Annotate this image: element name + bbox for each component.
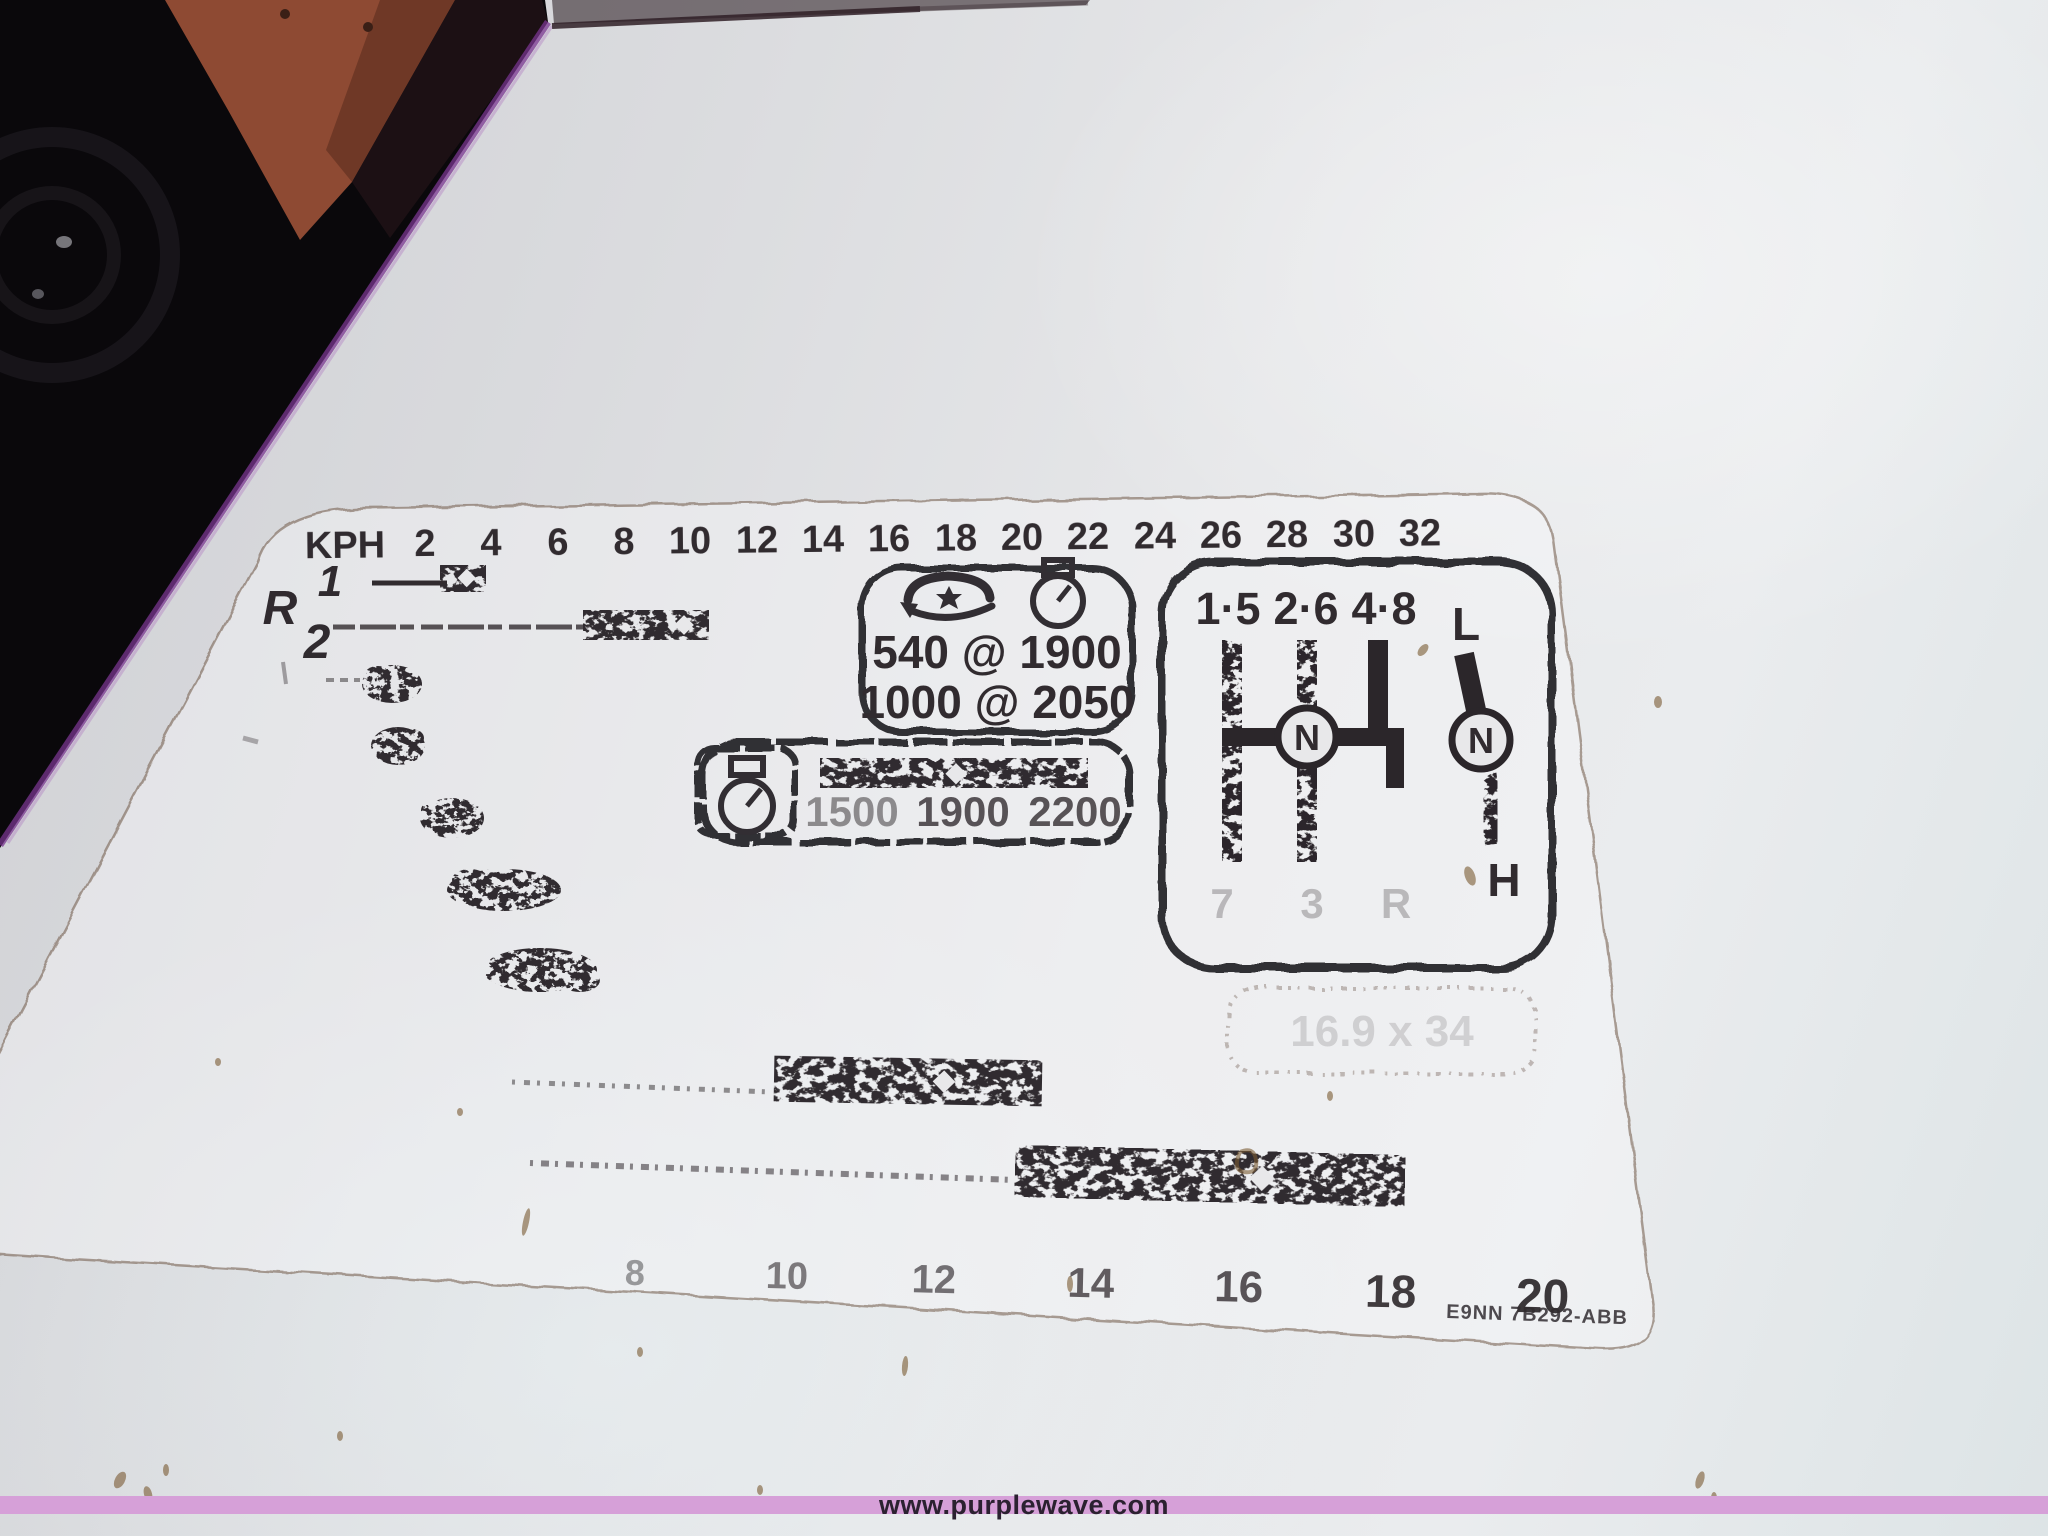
kph-tick: 4	[480, 522, 502, 564]
range-low-label: L	[1452, 598, 1480, 650]
engine-rpm-value-2: 1900	[916, 788, 1009, 835]
tire-size-label: 16.9 x 34	[1290, 1007, 1474, 1056]
gear6-bar-worn	[774, 1056, 1043, 1107]
shift-bottom-label-3: R	[1381, 880, 1411, 927]
pto-speed-540: 540 @ 1900	[872, 626, 1122, 678]
gear3-bar-worn	[420, 798, 484, 838]
gear4-bar-worn	[447, 869, 561, 911]
pto-speed-1000: 1000 @ 2050	[859, 676, 1134, 728]
kph-tick: 28	[1266, 514, 1309, 556]
kph-tick: 24	[1134, 515, 1177, 557]
gear7-bar-worn	[1014, 1145, 1405, 1207]
shift-top-label-2: 2·6	[1273, 583, 1338, 634]
kph-tick: 10	[669, 520, 712, 562]
kph-tick: 30	[1333, 513, 1376, 555]
mph-tick: 12	[911, 1257, 956, 1302]
kph-tick: 20	[1001, 517, 1044, 559]
photo-tractor-fender-decal: KPH 2 4 6 8 10 12 14 16 18 20 22 24 26 2…	[0, 0, 2048, 1536]
engine-rpm-value-3: 2200	[1028, 788, 1121, 835]
watermark-band: www.purplewave.com	[0, 1496, 2048, 1514]
reverse-gear-1-label: 1	[318, 557, 342, 606]
shift-neutral-label: N	[1294, 717, 1320, 758]
hub-highlight	[56, 236, 72, 248]
kph-tick: 6	[547, 521, 569, 563]
kph-tick: 2	[414, 523, 436, 565]
watermark-text: www.purplewave.com	[879, 1496, 1169, 1514]
shift-top-label-3: 4·8	[1351, 583, 1416, 634]
shift-top-label-1: 1·5	[1195, 583, 1260, 634]
shift-bottom-label-2: 3	[1300, 880, 1323, 927]
kph-tick: 8	[613, 521, 635, 563]
photo-graphics: KPH 2 4 6 8 10 12 14 16 18 20 22 24 26 2…	[0, 0, 2048, 1536]
kph-tick: 14	[802, 519, 845, 561]
mph-tick: 18	[1365, 1265, 1417, 1318]
kph-tick: 22	[1067, 516, 1110, 558]
body-hole-2	[363, 22, 373, 32]
mph-tick: 8	[624, 1252, 645, 1293]
kph-tick: 26	[1200, 514, 1243, 556]
range-neutral-label: N	[1468, 720, 1494, 761]
kph-tick: 18	[935, 517, 978, 559]
range-high-label: H	[1487, 854, 1520, 906]
reverse-gear-2-label: 2	[303, 616, 331, 669]
mph-tick: 10	[765, 1255, 808, 1298]
reverse-label: R	[263, 582, 298, 635]
mph-tick: 16	[1214, 1262, 1264, 1312]
mph-tick: 14	[1067, 1259, 1115, 1307]
engine-rpm-value-1: 1500	[805, 788, 898, 835]
kph-tick: 32	[1399, 512, 1442, 554]
gear1-bar-worn	[362, 665, 422, 703]
kph-tick: 16	[868, 518, 911, 560]
hub-highlight-2	[32, 289, 44, 299]
shift-bottom-label-1: 7	[1210, 880, 1233, 927]
kph-tick: 12	[736, 519, 779, 561]
body-hole	[280, 9, 290, 19]
gear2-bar-worn	[371, 727, 425, 765]
